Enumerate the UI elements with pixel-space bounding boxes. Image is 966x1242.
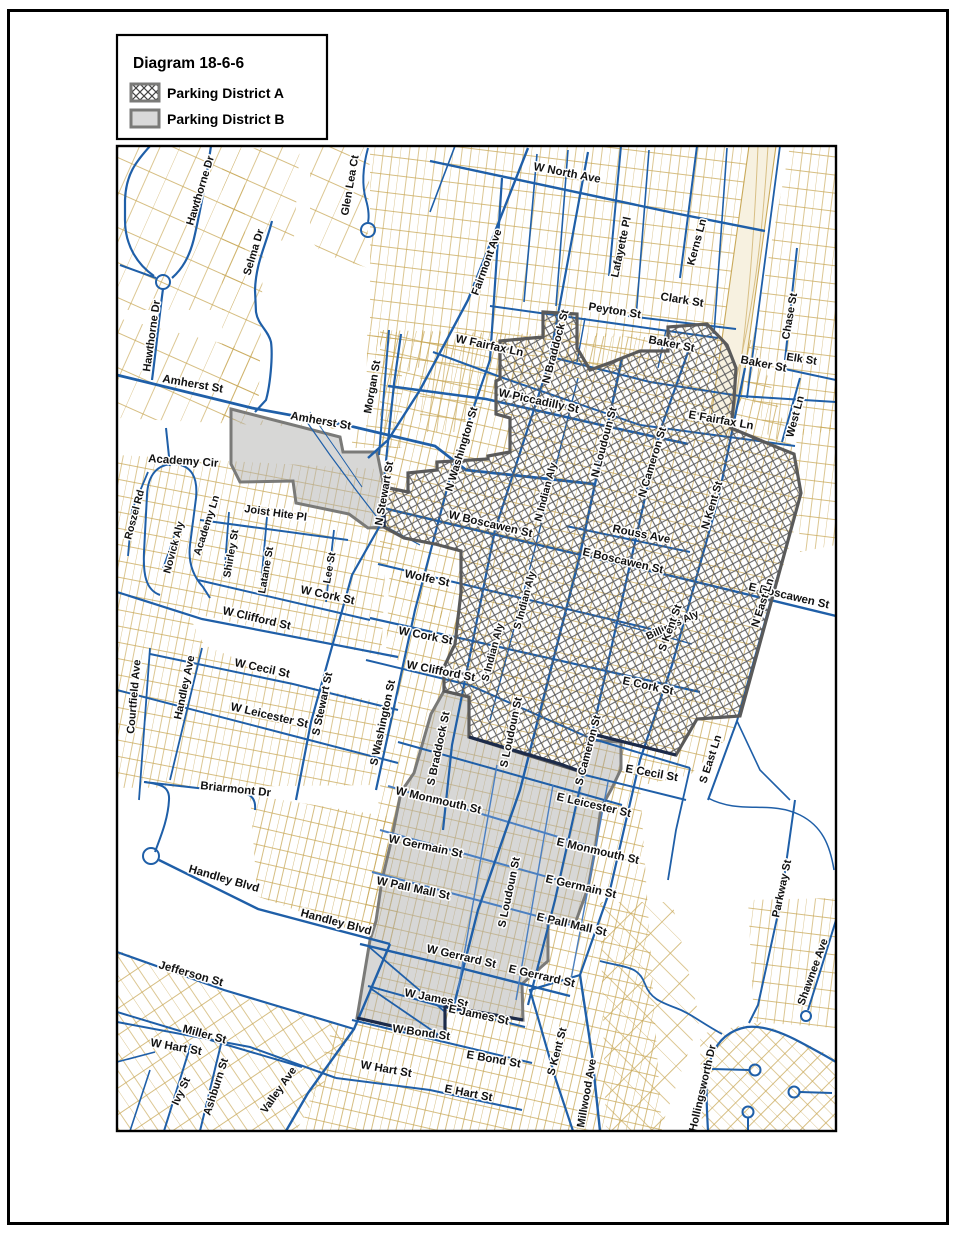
svg-text:Diagram 18-6-6: Diagram 18-6-6 [133, 55, 245, 72]
svg-text:Parking District A: Parking District A [167, 85, 284, 101]
svg-text:Parking District B: Parking District B [167, 111, 284, 127]
